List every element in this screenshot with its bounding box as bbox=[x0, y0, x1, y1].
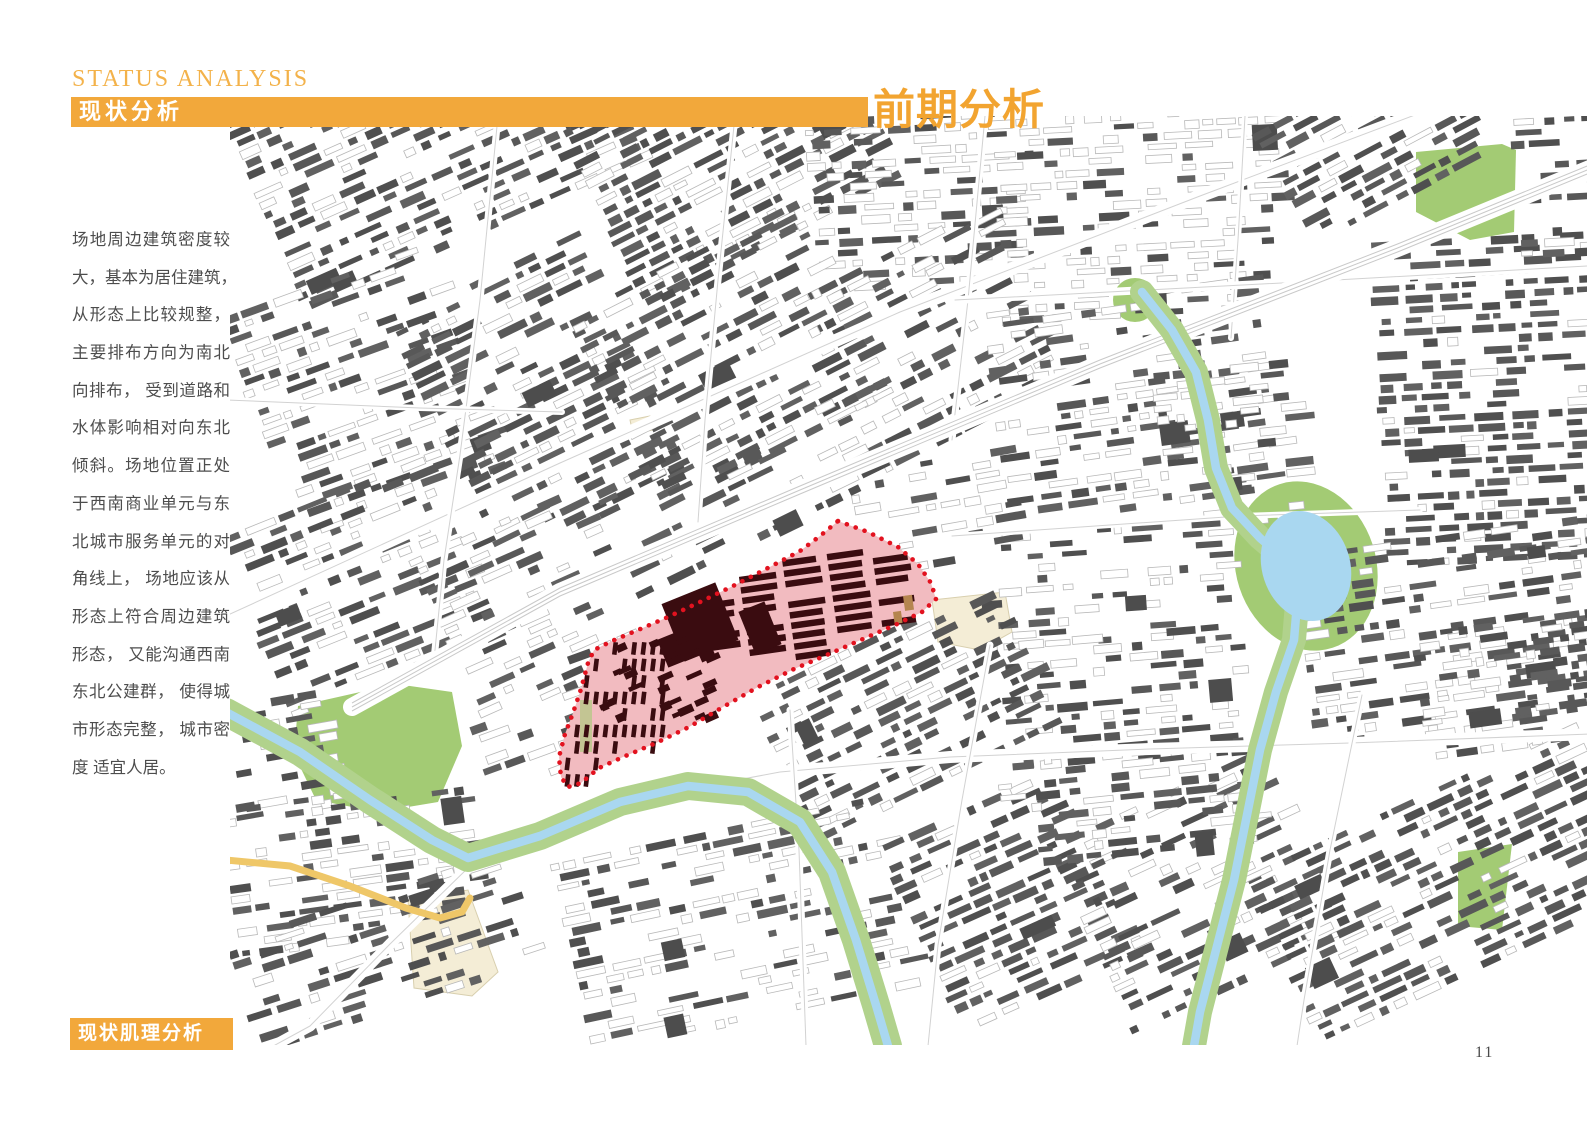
page-number: 11 bbox=[1475, 1044, 1494, 1062]
document-page: { "page": {"width":1587, "height":1122, … bbox=[0, 0, 1587, 1122]
analysis-text-line: 度 适宜人居。 bbox=[72, 750, 230, 788]
eyebrow-title: STATUS ANALYSIS bbox=[72, 66, 309, 93]
analysis-text-line: 大，基本为居住建筑， bbox=[72, 260, 230, 298]
page-title: 前期分析 bbox=[873, 89, 1045, 131]
section-title-bar: 现状分析 bbox=[71, 97, 868, 127]
analysis-text-line: 主要排布方向为南北 bbox=[72, 335, 230, 373]
analysis-text-line: 北城市服务单元的对 bbox=[72, 524, 230, 562]
footer-section-tab: 现状肌理分析 bbox=[70, 1018, 233, 1050]
analysis-text-line: 水体影响相对向东北 bbox=[72, 410, 230, 448]
analysis-text-line: 场地周边建筑密度较 bbox=[72, 222, 230, 260]
analysis-text-line: 角线上， 场地应该从 bbox=[72, 561, 230, 599]
analysis-text-block: 场地周边建筑密度较大，基本为居住建筑，从形态上比较规整，主要排布方向为南北向排布… bbox=[72, 222, 230, 787]
analysis-text-line: 倾斜。场地位置正处 bbox=[72, 448, 230, 486]
analysis-text-line: 向排布， 受到道路和 bbox=[72, 373, 230, 411]
city-figure-ground-map bbox=[230, 116, 1587, 1045]
analysis-text-line: 市形态完整， 城市密 bbox=[72, 712, 230, 750]
analysis-text-line: 东北公建群， 使得城 bbox=[72, 674, 230, 712]
section-title-label: 现状分析 bbox=[79, 99, 183, 124]
analysis-text-line: 于西南商业单元与东 bbox=[72, 486, 230, 524]
analysis-text-line: 从形态上比较规整， bbox=[72, 297, 230, 335]
analysis-text-line: 形态上符合周边建筑 bbox=[72, 599, 230, 637]
analysis-text-line: 形态， 又能沟通西南 bbox=[72, 637, 230, 675]
footer-section-label: 现状肌理分析 bbox=[78, 1023, 204, 1044]
map-root bbox=[230, 116, 1587, 1045]
